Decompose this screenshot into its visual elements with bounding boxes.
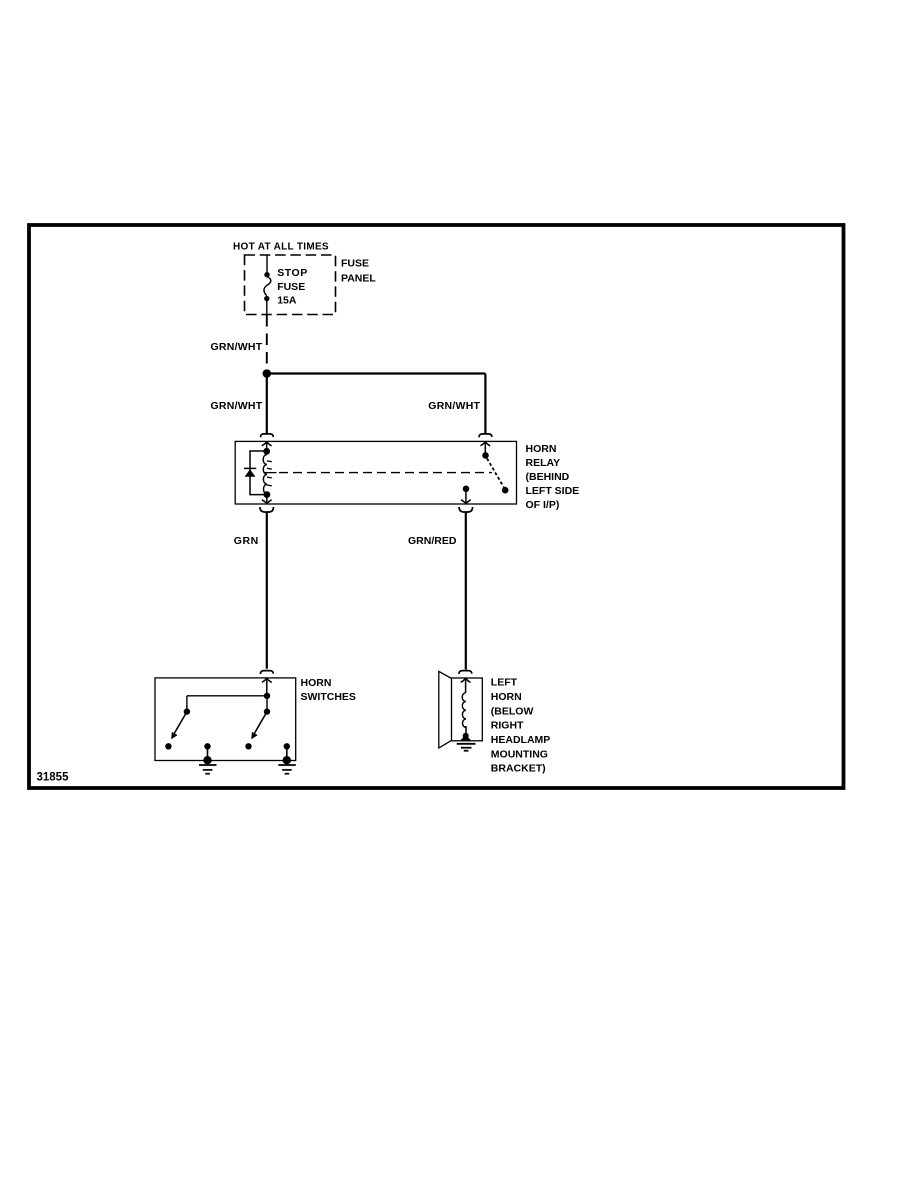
svg-text:GRN/RED: GRN/RED: [408, 535, 457, 547]
svg-text:MOUNTING: MOUNTING: [491, 748, 548, 760]
svg-text:HOT AT ALL TIMES: HOT AT ALL TIMES: [233, 242, 329, 253]
svg-text:HORN: HORN: [301, 677, 332, 689]
svg-text:FUSE: FUSE: [341, 258, 369, 270]
svg-text:HORN: HORN: [491, 691, 522, 703]
svg-text:GRN/WHT: GRN/WHT: [211, 341, 263, 353]
svg-text:HEADLAMP: HEADLAMP: [491, 734, 551, 746]
svg-text:OF I/P): OF I/P): [526, 499, 560, 511]
svg-text:RIGHT: RIGHT: [491, 720, 524, 732]
svg-text:SWITCHES: SWITCHES: [301, 691, 356, 703]
svg-text:PANEL: PANEL: [341, 272, 376, 284]
svg-text:BRACKET): BRACKET): [491, 763, 546, 775]
svg-text:15A: 15A: [277, 295, 297, 307]
svg-text:GRN: GRN: [234, 535, 259, 547]
svg-text:GRN/WHT: GRN/WHT: [211, 400, 263, 412]
svg-text:31855: 31855: [37, 771, 70, 783]
svg-text:RELAY: RELAY: [526, 457, 561, 469]
svg-text:LEFT: LEFT: [491, 677, 518, 689]
svg-text:STOP: STOP: [277, 267, 308, 279]
svg-text:GRN/WHT: GRN/WHT: [428, 400, 480, 412]
svg-text:HORN: HORN: [526, 443, 557, 455]
svg-text:(BEHIND: (BEHIND: [526, 471, 570, 483]
svg-text:(BELOW: (BELOW: [491, 705, 534, 717]
svg-text:FUSE: FUSE: [277, 281, 305, 293]
svg-text:LEFT SIDE: LEFT SIDE: [526, 485, 580, 497]
